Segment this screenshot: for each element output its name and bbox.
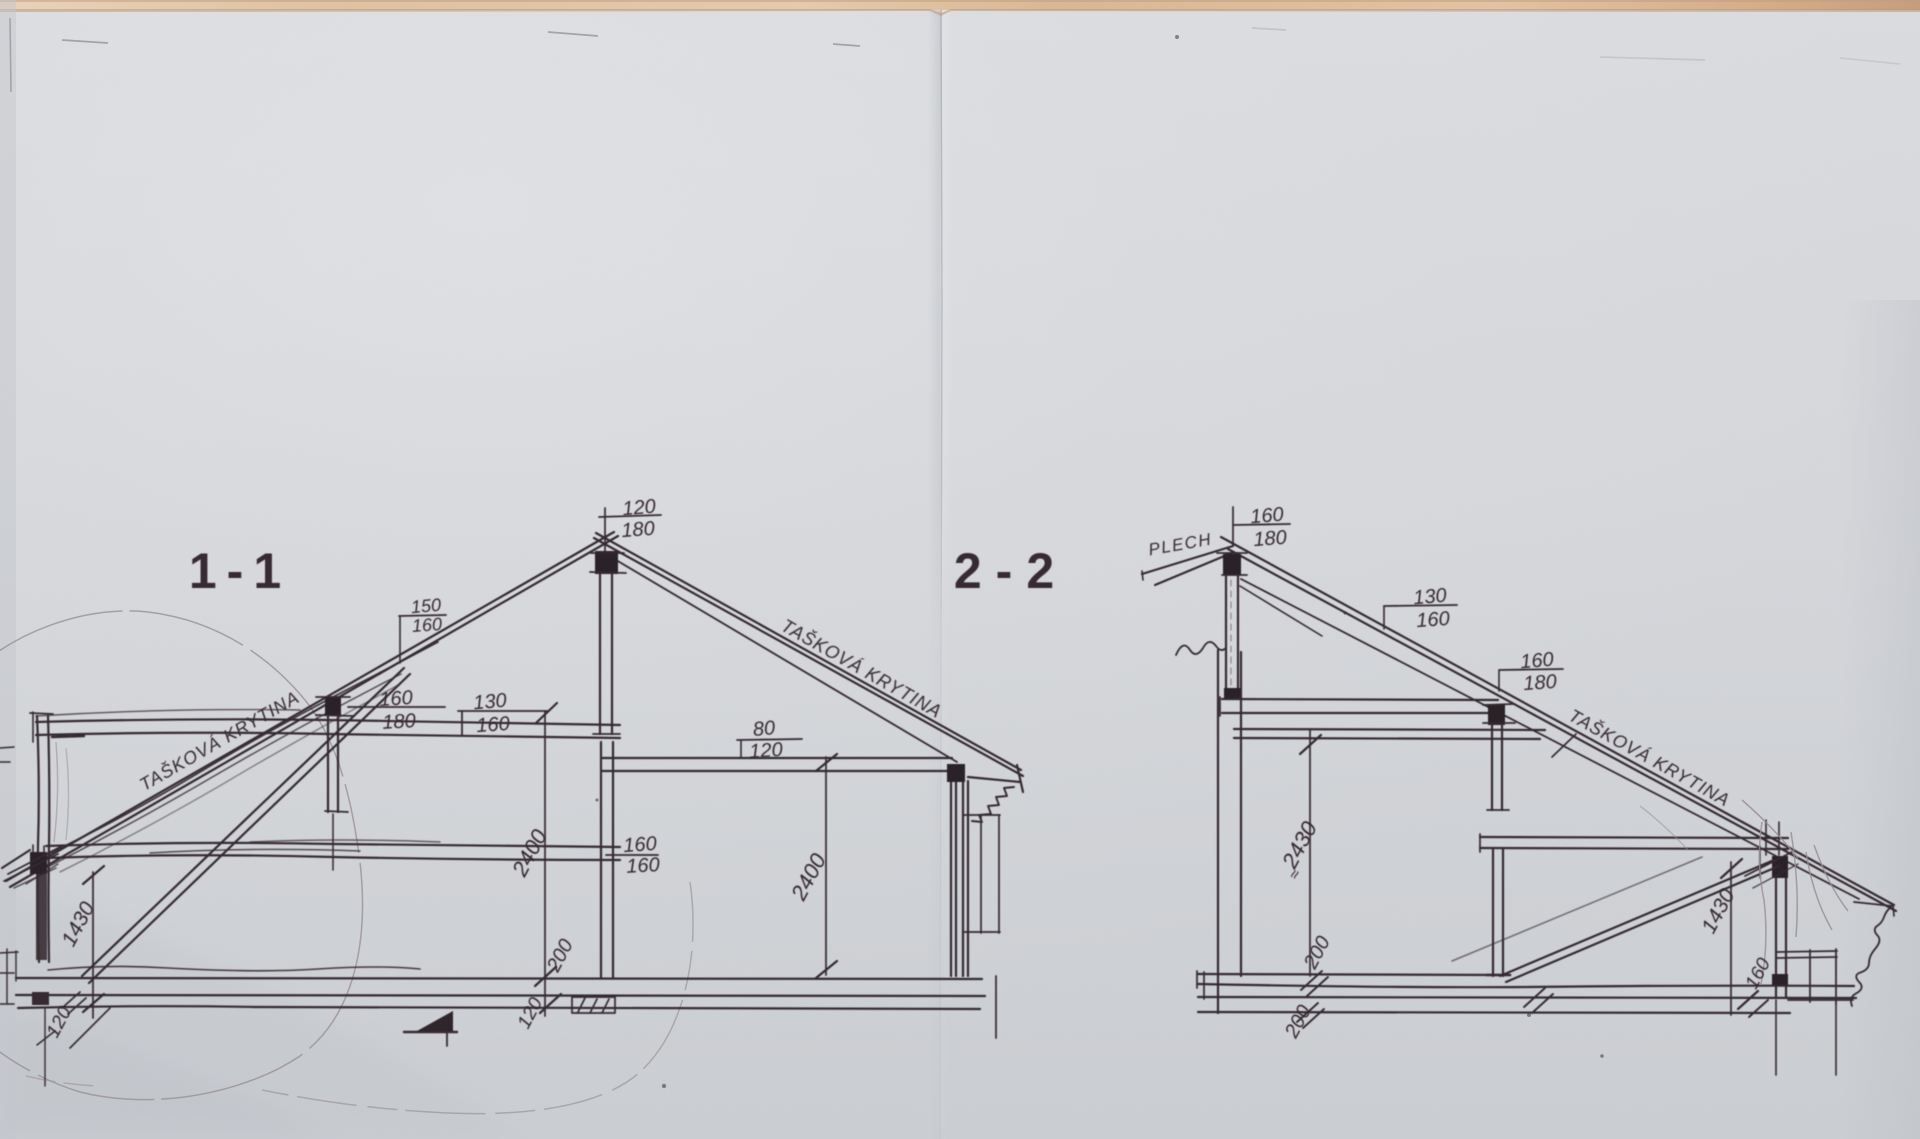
svg-text:120: 120 <box>622 496 657 521</box>
svg-text:160: 160 <box>379 687 414 711</box>
svg-text:160: 160 <box>411 614 442 636</box>
svg-text:160: 160 <box>1249 504 1284 529</box>
svg-text:160: 160 <box>626 854 660 878</box>
svg-text:1-1: 1-1 <box>189 543 291 599</box>
svg-text:130: 130 <box>1412 585 1447 610</box>
svg-text:180: 180 <box>1523 671 1558 695</box>
svg-text:130: 130 <box>472 690 507 715</box>
svg-text:2-2: 2-2 <box>954 543 1068 599</box>
svg-text:180: 180 <box>1253 527 1288 551</box>
svg-text:160: 160 <box>1519 649 1554 674</box>
svg-text:180: 180 <box>621 518 656 542</box>
svg-text:160: 160 <box>476 713 511 737</box>
svg-text:180: 180 <box>382 710 416 734</box>
svg-text:120: 120 <box>749 739 784 763</box>
svg-text:160: 160 <box>1416 608 1451 632</box>
svg-text:80: 80 <box>752 717 776 741</box>
